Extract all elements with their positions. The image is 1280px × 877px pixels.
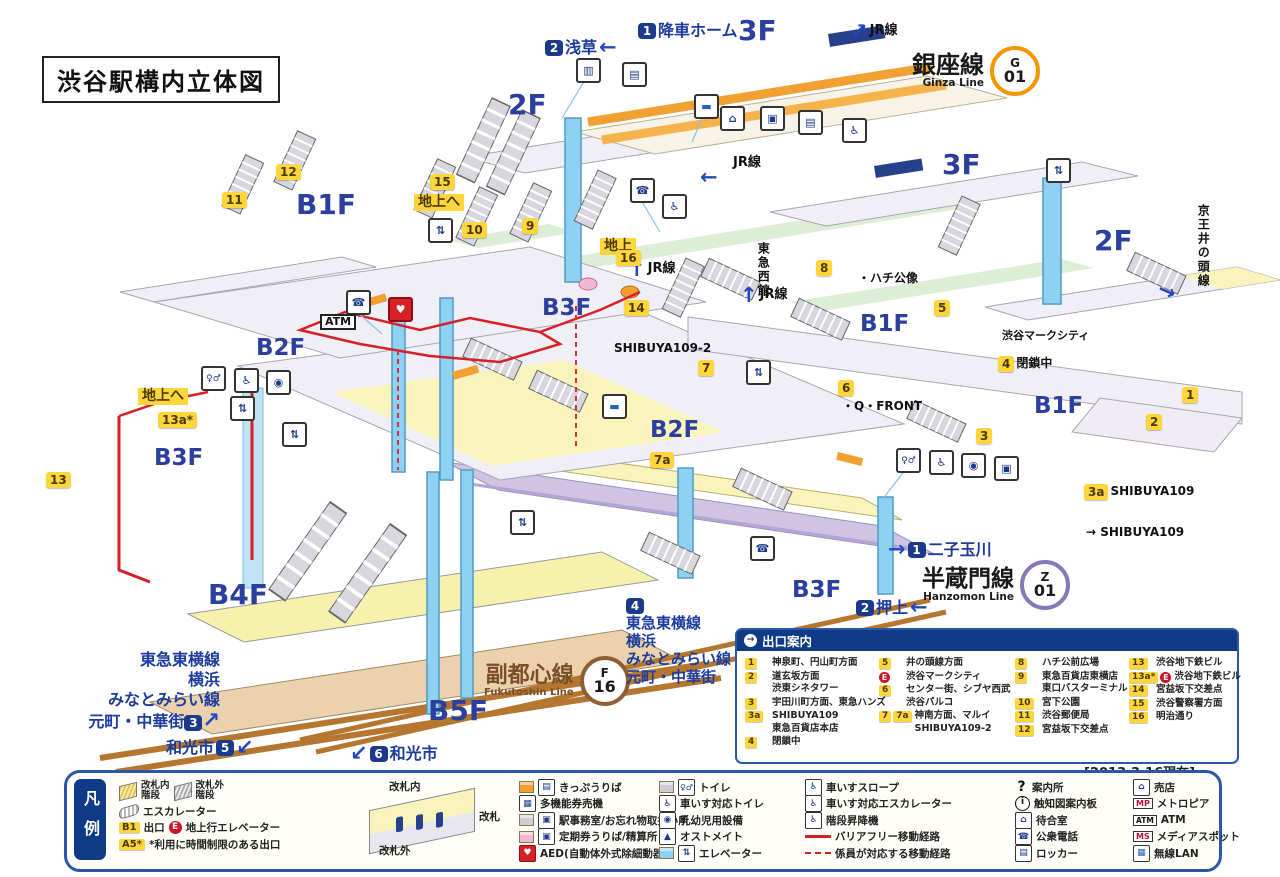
office-icon: ▣ xyxy=(994,456,1019,481)
floor-b1f-mid: B1F xyxy=(860,312,909,337)
floor-b3f-left: B3F xyxy=(154,446,203,471)
multifunction-machine-icon: ▦ xyxy=(519,795,536,812)
exit-13: 13 xyxy=(46,472,71,488)
exit-8: 8 xyxy=(816,260,832,276)
metropia-icon: MP xyxy=(1133,798,1153,809)
exit-destination: 宮益坂下交差点 xyxy=(1042,724,1109,737)
to-ground-15: 地上へ xyxy=(414,194,464,211)
exit-number-badge: 12 xyxy=(1015,725,1034,736)
pass-office-icon: ▣ xyxy=(538,828,555,845)
office-icon: ▣ xyxy=(760,106,785,131)
hanzomon-line-roundel: Z 01 xyxy=(1020,560,1070,610)
shibuya-station-3d-map-page: { "title":"渋谷駅構内立体図", "icons":{"header_a… xyxy=(0,0,1280,877)
exit-guide-entry: 15 渋谷警察署方面 xyxy=(1129,698,1241,711)
exit-12: 12 xyxy=(276,164,301,180)
to-oshiage: 2押上← xyxy=(856,596,928,619)
exit-number-badge: 4 xyxy=(745,737,757,748)
exit-3: 3 xyxy=(976,428,992,444)
tokyu-toyoko-destinations-center: 4 東急東横線 横浜 みなとみらい線 元町・中華街 xyxy=(626,596,731,686)
exit-guide-entry: 1 神泉町、円山町方面 xyxy=(745,657,886,670)
exit-destination: 渋谷警察署方面 xyxy=(1156,698,1223,711)
exit-badge-sample: B1 xyxy=(119,822,140,833)
exit-guide-entry: 14 宮益坂下交差点 xyxy=(1129,684,1241,697)
toilet-icon: ♀♂ xyxy=(678,779,695,796)
exit-number-badge: 13a* xyxy=(1129,672,1158,683)
exit-destination: 東口バスターミナル xyxy=(1042,683,1128,696)
exit-destination: センター街、シブヤ西武 xyxy=(906,684,1011,697)
elevator-icon: ⇅ xyxy=(230,396,255,421)
hanzomon-line-name-en: Hanzomon Line xyxy=(922,592,1014,603)
exit-destination: 渋谷マークシティ xyxy=(906,671,981,684)
exit-guide-col1: 1 神泉町、円山町方面 2 道玄坂方面 渋東シネタワー 3 宇田川町方面、東急ハ… xyxy=(745,657,886,750)
exit-number-badge: 14 xyxy=(1129,685,1148,696)
paid-area-stairs-icon xyxy=(119,781,137,800)
wireless-lan-icon: ▦ xyxy=(1133,845,1150,862)
exit-destination: 宮益坂下交差点 xyxy=(1156,684,1223,697)
fukutoshin-line-label: 副都心線 Fukutoshin Line F 16 xyxy=(484,656,630,706)
wheelchair-slope-icon: ♿ xyxy=(805,779,822,796)
legend-gate-diagram: 改札内 改札 改札外 xyxy=(355,781,505,861)
elevator-icon: ⇅ xyxy=(428,218,453,243)
phone-icon: ☎ xyxy=(630,178,655,203)
wheelchair-icon: ♿ xyxy=(662,194,687,219)
toilet-icon: ♀♂ xyxy=(201,366,226,391)
escalator-icon xyxy=(119,803,139,820)
deboarding-platform: 1降車ホーム xyxy=(638,22,738,40)
shop-icon: ⌂ xyxy=(720,106,745,131)
exit-guide-entry: 12 宮益坂下交差点 xyxy=(1015,724,1128,737)
exit-destination: 渋谷パルコ xyxy=(906,697,1011,710)
exit-destination: ハチ公前広場 xyxy=(1042,657,1099,670)
exit-number-badge: 9 xyxy=(1015,672,1027,683)
baby-facility-icon: ◉ xyxy=(266,370,291,395)
tokyu-west-bldg: 東急西館 xyxy=(756,242,769,298)
exit-15: 15 xyxy=(430,174,455,190)
exit-destination: 渋東シネタワー xyxy=(772,683,839,696)
exit-number-badge: 3 xyxy=(745,698,757,709)
exit-destination: 渋谷郵便局 xyxy=(1042,710,1090,723)
barrier-free-route-line xyxy=(805,835,831,838)
ginza-line-name-en: Ginza Line xyxy=(912,78,984,89)
wheelchair-toilet-icon: ♿ xyxy=(929,450,954,475)
floor-b5f: B5F xyxy=(428,696,488,727)
exit-destination: 井の頭線方面 xyxy=(906,657,963,670)
exit-10: 10 xyxy=(462,222,487,238)
exit-number-badge: 1 xyxy=(745,658,757,669)
to-futako-tamagawa: →1二子玉川 xyxy=(888,538,992,561)
baby-facility-icon: ◉ xyxy=(659,812,676,829)
to-asakusa: 2浅草← xyxy=(545,36,617,59)
wheelchair-toilet-icon: ♿ xyxy=(234,368,259,393)
wheelchair-escalator-icon: ♿ xyxy=(842,118,867,143)
exit-4-closed: 4閉鎖中 xyxy=(998,356,1052,372)
locker-icon: ▤ xyxy=(1015,845,1032,862)
exit-guide-col2: 5 井の頭線方面 E 渋谷マークシティ 6 センター街、シブヤ西武 渋谷パルコ xyxy=(879,657,1011,736)
exit-guide-entry: 3 宇田川町方面、東急ハンズ xyxy=(745,697,886,710)
exit-destination: 明治通り xyxy=(1156,711,1194,724)
ginza-line-name: 銀座線 xyxy=(912,53,984,77)
fare-machine-icon: ▤ xyxy=(622,62,647,87)
exit-guide-entry: E 渋谷マークシティ xyxy=(879,671,1011,684)
to-wakoshi-5: 和光市5↙ xyxy=(166,736,254,759)
ticket-office-cube-icon xyxy=(519,781,534,793)
shibuya109-2: SHIBUYA109-2 xyxy=(614,342,711,355)
toilet-icon: ♀♂ xyxy=(896,448,921,473)
ostomate-icon: ▲ xyxy=(659,828,676,845)
exit-destination: SHIBUYA109 xyxy=(772,710,839,723)
to-ground-13a: 地上へ xyxy=(138,388,188,405)
page-title: 渋谷駅構内立体図 xyxy=(42,56,280,103)
ground-elevator-icon: E xyxy=(169,821,182,834)
exit-destination: 宮下公園 xyxy=(1042,697,1080,710)
exit-number-badge: 3a xyxy=(745,711,763,722)
legend-col-stairs-exits: 改札内階段 改札外階段 エスカレーター B1 出口 E 地上行エレベーター A5… xyxy=(119,779,280,853)
information-icon: ? xyxy=(1015,779,1028,795)
exit-7: 7 xyxy=(698,360,714,376)
legend-col-facilities: ♀♂トイレ ♿車いす対応トイレ ◉乳幼児用設備 ▲オストメイト ⇅エレベーター xyxy=(659,779,764,862)
exit-guide-entry: 5 井の頭線方面 xyxy=(879,657,1011,670)
fukutoshin-line-roundel: F 16 xyxy=(580,656,630,706)
elevator-icon: ⇅ xyxy=(746,360,771,385)
exit-3a-shibuya109: 3aSHIBUYA109 xyxy=(1084,484,1194,500)
fukutoshin-line-name-en: Fukutoshin Line xyxy=(484,688,574,698)
exit-number-badge: 2 xyxy=(745,672,757,683)
legend-col-shops: ⌂売店 MPメトロピア ATMATM MSメディアスポット ▦無線LAN xyxy=(1133,779,1240,862)
exit-5: 5 xyxy=(934,300,950,316)
exit-number-badge: 16 xyxy=(1129,712,1148,723)
exit-number-badge: 8 xyxy=(1015,658,1027,669)
floor-b2f-mid: B2F xyxy=(650,418,699,443)
waiting-room-icon: ⌂ xyxy=(1015,812,1032,829)
atm-icon: ATM xyxy=(1133,815,1157,826)
legend-col-services: ?案内所 i触知図案内板 ⌂待合室 ☎公衆電話 ▤ロッカー xyxy=(1015,779,1097,862)
exit-number-badge: 13 xyxy=(1129,658,1148,669)
station-office-cube-icon xyxy=(519,814,534,826)
to-wakoshi-6: ↙6和光市 xyxy=(350,742,438,765)
elevator-icon: ⇅ xyxy=(510,510,535,535)
exit-number-badge: 7a xyxy=(893,711,911,722)
exit-number-badge: 10 xyxy=(1015,698,1034,709)
aed-icon: ♥ xyxy=(519,845,536,862)
exit-7a: 7a xyxy=(650,452,674,468)
exit-destination: 道玄坂方面 xyxy=(772,671,839,684)
floor-2f-right: 2F xyxy=(1094,226,1133,257)
exit-number-badge: 6 xyxy=(879,685,891,696)
station-office-icon: ▣ xyxy=(538,812,555,829)
elevator-e-badge: E xyxy=(1160,672,1171,683)
unpaid-area-stairs-icon xyxy=(174,781,192,800)
kiosk-icon: ⌂ xyxy=(1133,779,1150,796)
shibuya-mark-city: 渋谷マークシティ xyxy=(1002,330,1089,342)
exit-guide-entry: 4 閉鎖中 xyxy=(745,736,886,749)
route-4-navy-badge: 4 xyxy=(626,598,644,614)
exit-guide-entry: 2 道玄坂方面 渋東シネタワー xyxy=(745,671,886,696)
floor-b3f-mid: B3F xyxy=(542,296,591,321)
exit-destination: 渋谷地下鉄ビル xyxy=(1156,657,1223,670)
floor-b3f-bottom: B3F xyxy=(792,578,841,603)
fukutoshin-line-name: 副都心線 xyxy=(484,665,574,687)
exit-guide-entry: 11 渋谷郵便局 xyxy=(1015,710,1128,723)
exit-guide-col3: 8 ハチ公前広場 9 東急百貨店東横店 東口バスターミナル 10 宮下公園 xyxy=(1015,657,1128,737)
pass-office-cube-icon xyxy=(519,831,534,843)
exit-2: 2 xyxy=(1146,414,1162,430)
baby-facility-icon: ◉ xyxy=(961,453,986,478)
exit-guide-entry: 13a* E 渋谷地下鉄ビル xyxy=(1129,671,1241,684)
legend-col-accessibility: ♿車いすスロープ ♿車いす対応エスカレーター ♿階段昇降機 バリアフリー移動経路… xyxy=(805,779,952,862)
keio-inokashira-line: 京王井の頭線 xyxy=(1196,204,1209,288)
ticket-icon: ▤ xyxy=(538,779,555,796)
floor-b1f-left: B1F xyxy=(296,190,356,221)
exit-guide-entry: 13 渋谷地下鉄ビル xyxy=(1129,657,1241,670)
hachiko-statue: ・ハチ公像 xyxy=(858,272,918,285)
elevator-icon: ⇅ xyxy=(1046,158,1071,183)
bus-icon: ▬ xyxy=(602,394,627,419)
exit-guide-entry: 8 ハチ公前広場 xyxy=(1015,657,1128,670)
exit-destination: 渋谷地下鉄ビル xyxy=(1174,671,1241,684)
aed-icon: ♥ xyxy=(388,297,413,322)
ginza-line-roundel: G 01 xyxy=(990,46,1040,96)
exit-14: 14 xyxy=(624,300,649,316)
exit-guide-panel: → 出口案内 1 神泉町、円山町方面 2 道玄坂方面 渋東シネタワー 3 xyxy=(735,628,1239,764)
hanzomon-line-label: 半蔵門線 Hanzomon Line Z 01 xyxy=(922,560,1070,610)
staff-assisted-route-line xyxy=(805,852,831,854)
exit-11: 11 xyxy=(222,192,247,208)
bus-icon: ▬ xyxy=(694,94,719,119)
exit-number-badge: 5 xyxy=(879,658,891,669)
elevator-e-badge: E xyxy=(879,672,890,683)
to-shibuya109: → SHIBUYA109 xyxy=(1086,526,1184,539)
exit-destination: 神南方面、マルイ xyxy=(915,710,992,723)
q-front: ・Q・FRONT xyxy=(842,400,922,413)
exit-6: 6 xyxy=(838,380,854,396)
exit-16: 16 xyxy=(616,250,641,266)
jr-line-top: ↗JR線 xyxy=(850,20,897,43)
atm-label: ATM xyxy=(320,314,356,330)
floor-3f-top: 3F xyxy=(738,16,777,47)
exit-guide-entry: 9 東急百貨店東横店 東口バスターミナル xyxy=(1015,671,1128,696)
exit-destination: 東急百貨店東横店 xyxy=(1042,671,1128,684)
exit-number-badge: 7 xyxy=(879,711,891,722)
floor-b1f-right: B1F xyxy=(1034,394,1083,419)
exit-guide-col4: 13 渋谷地下鉄ビル 13a* E 渋谷地下鉄ビル 14 宮益坂下交差点 xyxy=(1129,657,1241,725)
ticket-gate-icon: ▥ xyxy=(576,58,601,83)
exit-guide-header: → 出口案内 xyxy=(737,630,1237,651)
exit-1: 1 xyxy=(1182,387,1198,403)
exit-destination: 閉鎖中 xyxy=(772,736,801,749)
gate-icon xyxy=(396,816,403,832)
floor-2f-left: 2F xyxy=(508,90,547,121)
legend-tab: 凡例 xyxy=(74,779,106,860)
tactile-map-icon: i xyxy=(1015,796,1030,811)
jr-line-3f: JR線 xyxy=(733,156,761,170)
floor-b2f-left: B2F xyxy=(256,336,305,361)
gate-icon xyxy=(416,814,423,830)
elevator-icon: ⇅ xyxy=(282,422,307,447)
exit-arrow-icon: → xyxy=(744,634,757,647)
exit-guide-entry: 10 宮下公園 xyxy=(1015,697,1128,710)
exit-guide-entry: 16 明治通り xyxy=(1129,711,1241,724)
exit-destination: 東急百貨店本店 xyxy=(772,723,839,736)
arrow-up-right-icon: ↗ xyxy=(202,708,220,732)
gate-icon xyxy=(436,812,443,828)
phone-icon: ☎ xyxy=(750,536,775,561)
exit-3-navy-badge: 3 xyxy=(184,715,202,731)
public-phone-icon: ☎ xyxy=(1015,828,1032,845)
ginza-line-label: 銀座線 Ginza Line G 01 xyxy=(912,46,1040,96)
exit-destination: 神泉町、円山町方面 xyxy=(772,657,858,670)
exit-guide-entry: 7 7a 神南方面、マルイ SHIBUYA109-2 xyxy=(879,710,1011,735)
toilet-cube-icon xyxy=(659,781,674,793)
exit-number-badge: 15 xyxy=(1129,699,1148,710)
exit-destination: SHIBUYA109-2 xyxy=(915,723,992,736)
exit-13a: 13a* xyxy=(158,412,197,428)
elevator-icon: ⇅ xyxy=(678,845,695,862)
hanzomon-line-name: 半蔵門線 xyxy=(922,568,1014,591)
floor-b4f: B4F xyxy=(208,580,268,611)
jr-line-3f-arrow: ← xyxy=(700,166,718,189)
floor-3f-right: 3F xyxy=(942,150,981,181)
phone-icon: ☎ xyxy=(346,290,371,315)
wheelchair-escalator-icon: ♿ xyxy=(805,795,822,812)
exit-destination: 宇田川町方面、東急ハンズ xyxy=(772,697,886,710)
stair-lift-icon: ♿ xyxy=(805,812,822,829)
tokyu-toyoko-destinations-west: 東急東横線 横浜 みなとみらい線 元町・中華街3↗ xyxy=(56,650,220,732)
media-spot-icon: MS xyxy=(1133,831,1153,842)
fare-machine-icon: ▤ xyxy=(798,110,823,135)
exit-guide-entry: 6 センター街、シブヤ西武 渋谷パルコ xyxy=(879,684,1011,709)
exit-guide-title: 出口案内 xyxy=(762,631,812,650)
exit-number-badge: 11 xyxy=(1015,711,1034,722)
wheelchair-toilet-icon: ♿ xyxy=(659,795,676,812)
restricted-exit-badge-sample: A5* xyxy=(119,839,145,850)
exit-9: 9 xyxy=(522,218,538,234)
elevator-cube-icon xyxy=(659,847,674,859)
legend-panel: 凡例 改札内階段 改札外階段 エスカレーター B1 出口 E 地上行エレベーター… xyxy=(64,770,1222,872)
exit-guide-entry: 3a SHIBUYA109 東急百貨店本店 xyxy=(745,710,886,735)
